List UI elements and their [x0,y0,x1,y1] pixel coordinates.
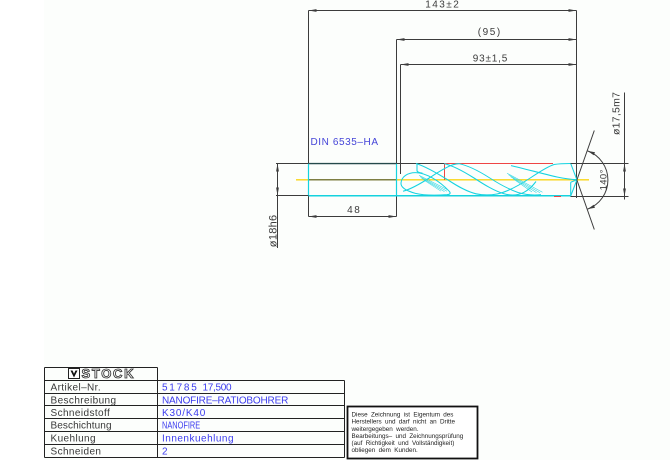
svg-text:Diese Zeichnung ist Eigentum d: Diese Zeichnung ist Eigentum des [352,412,454,419]
svg-text:ø17,5m7: ø17,5m7 [611,92,623,135]
svg-text:Bearbeitungs– und Zeichnungspr: Bearbeitungs– und Zeichnungsprüfung [352,433,464,440]
svg-text:STOCK: STOCK [82,366,135,381]
svg-text:Herstellers und darf nicht an: Herstellers und darf nicht an Dritte [352,419,456,426]
svg-text:NANOFIRE: NANOFIRE [162,420,200,431]
svg-text:obliegen dem Kunden.: obliegen dem Kunden. [352,447,418,454]
svg-text:weitergegeben werden.: weitergegeben werden. [351,426,419,433]
svg-text:DIN 6535–HA: DIN 6535–HA [311,137,379,148]
svg-text:143±2: 143±2 [425,0,459,11]
svg-text:Kuehlung: Kuehlung [51,434,96,445]
svg-text:ø18h6: ø18h6 [268,215,280,247]
svg-text:Beschichtung: Beschichtung [51,421,112,432]
svg-text:K30/K40: K30/K40 [162,408,206,419]
svg-text:48: 48 [347,205,360,216]
svg-text:Artikel–Nr.: Artikel–Nr. [51,383,102,394]
svg-text:(auf Richtigkeit und Vollständ: (auf Richtigkeit und Vollständigkeit) [352,440,455,447]
svg-text:17,500: 17,500 [203,383,232,394]
svg-text:Innenkuehlung: Innenkuehlung [162,434,234,445]
svg-text:93±1,5: 93±1,5 [473,54,508,65]
svg-text:2: 2 [162,447,168,458]
svg-text:Beschreibung: Beschreibung [51,395,117,406]
svg-text:140°: 140° [599,169,610,190]
svg-text:NANOFIRE–RATIOBOHRER: NANOFIRE–RATIOBOHRER [162,395,288,406]
svg-text:Schneidstoff: Schneidstoff [51,408,111,419]
svg-text:Schneiden: Schneiden [51,447,102,458]
svg-text:51785: 51785 [162,383,197,394]
